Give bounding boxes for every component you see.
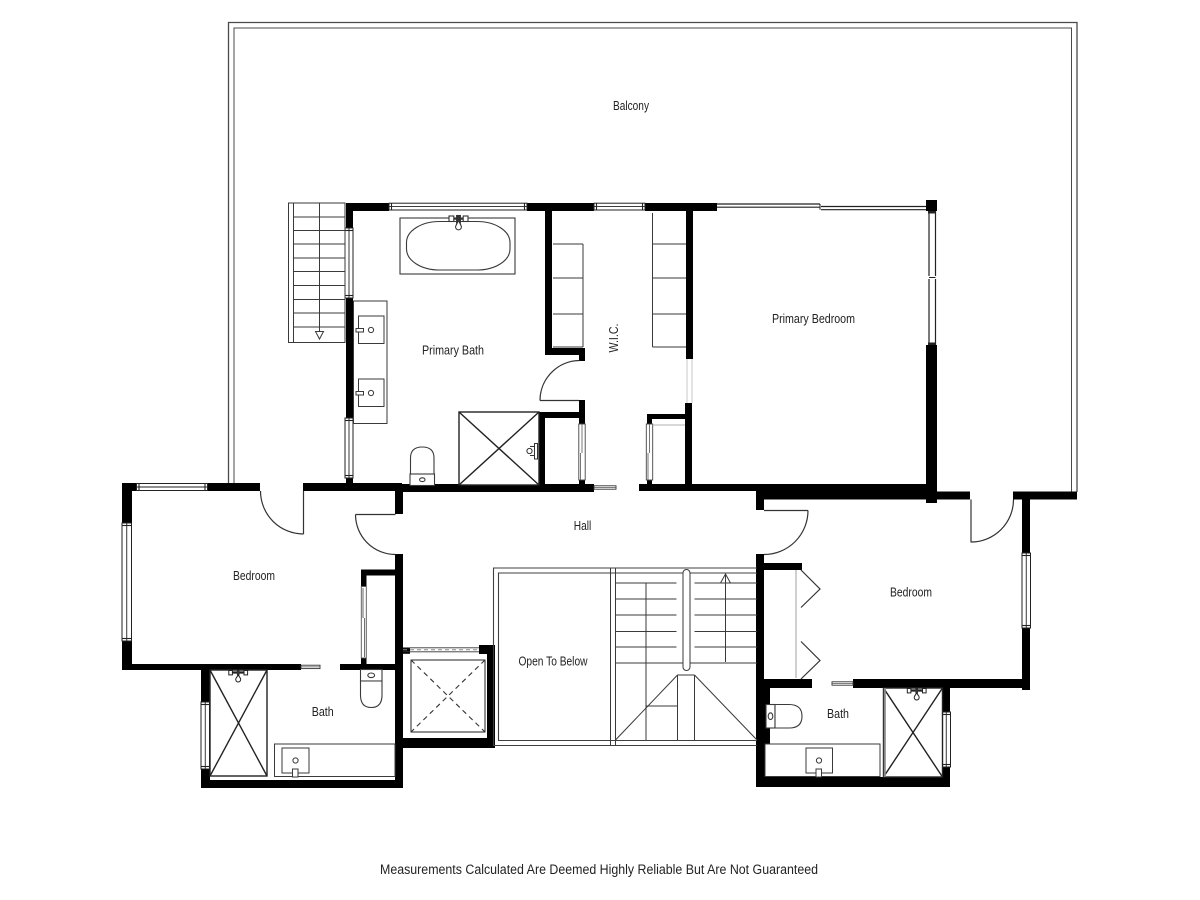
svg-text:Primary Bedroom: Primary Bedroom: [772, 311, 855, 326]
svg-text:Bath: Bath: [827, 706, 849, 721]
svg-text:Balcony: Balcony: [613, 98, 649, 113]
svg-text:Primary Bath: Primary Bath: [422, 343, 484, 358]
svg-text:Open To Below: Open To Below: [519, 654, 588, 669]
svg-text:Bedroom: Bedroom: [233, 568, 275, 583]
svg-text:Measurements Calculated Are De: Measurements Calculated Are Deemed Highl…: [380, 862, 818, 877]
svg-text:W.I.C.: W.I.C.: [606, 324, 621, 353]
svg-text:Hall: Hall: [574, 518, 592, 533]
svg-text:Bath: Bath: [312, 704, 334, 719]
svg-text:Bedroom: Bedroom: [890, 585, 932, 600]
